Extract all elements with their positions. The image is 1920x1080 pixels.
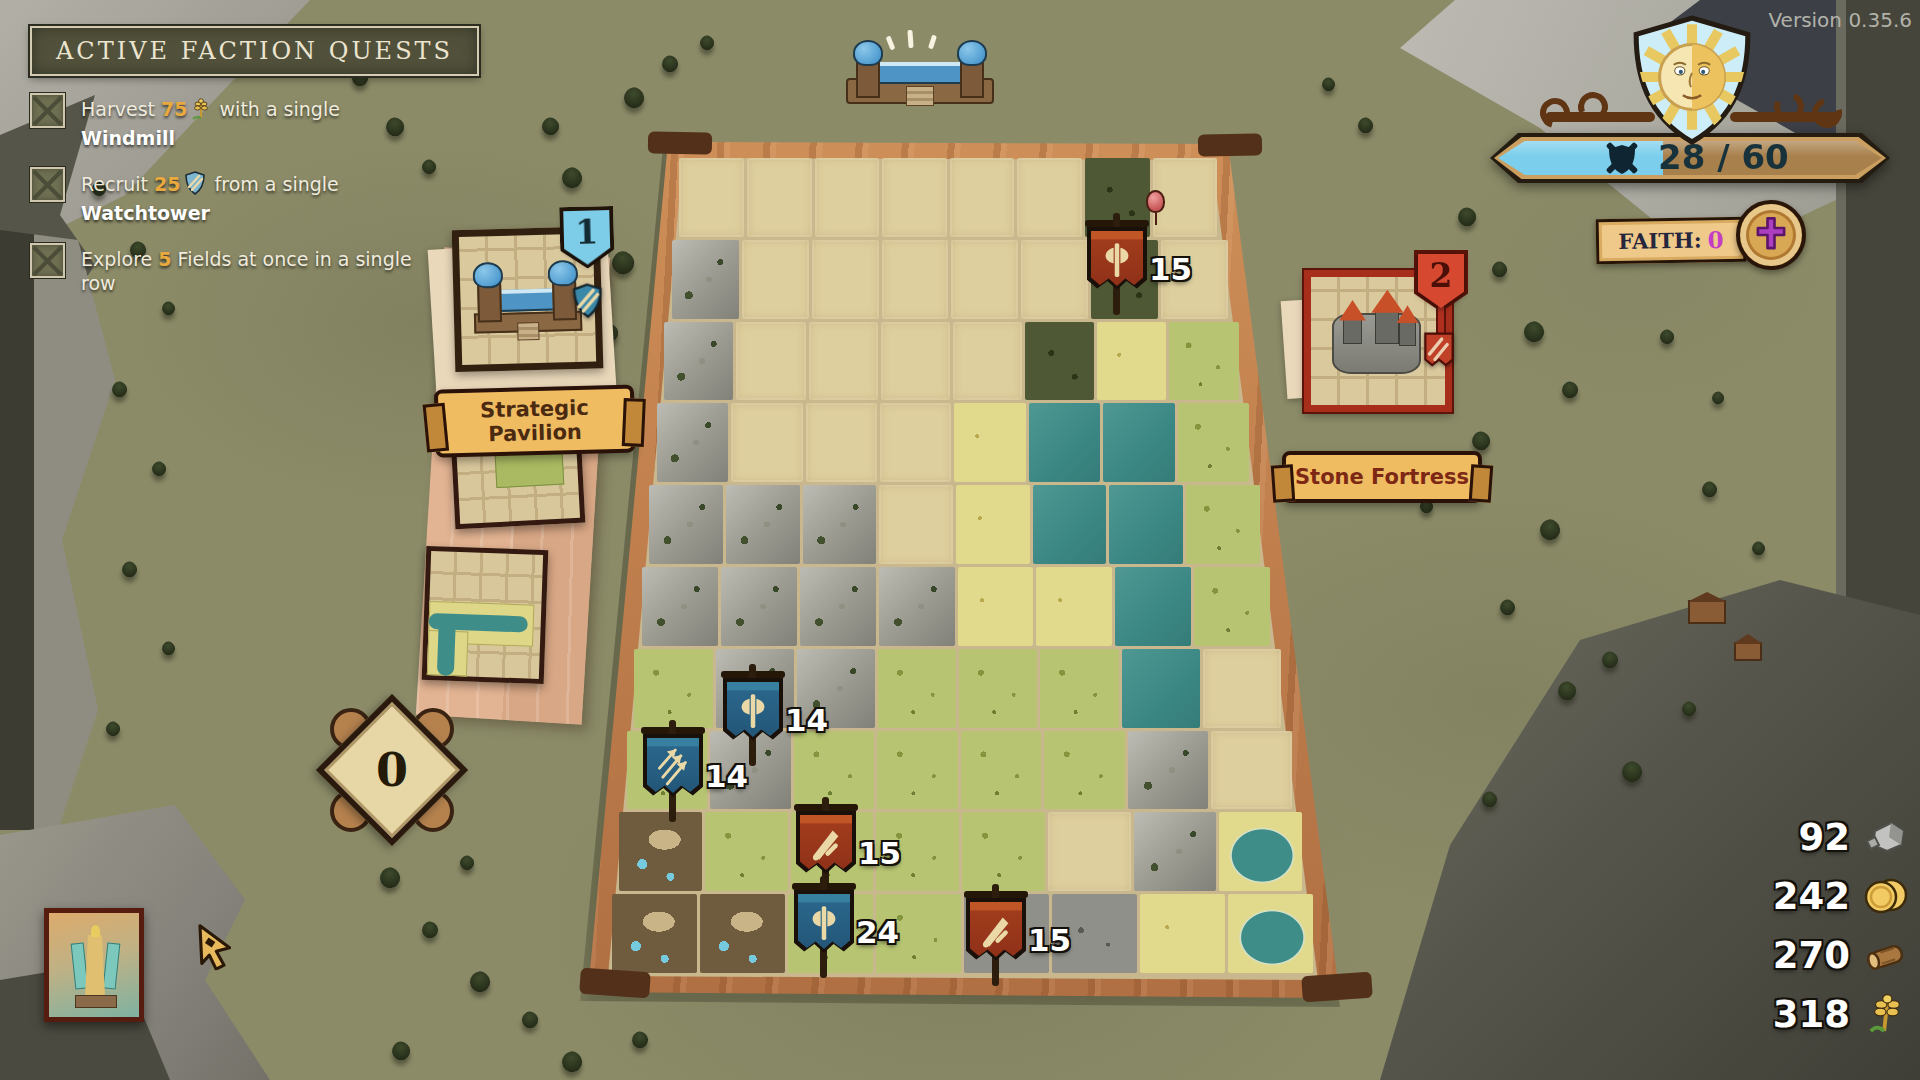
arrows-emblem-icon bbox=[647, 738, 699, 796]
board-corner-ornament bbox=[1198, 133, 1262, 156]
flag-banner bbox=[794, 890, 854, 956]
mouse-cursor bbox=[193, 920, 240, 976]
board-tile[interactable] bbox=[800, 567, 876, 646]
board-tile[interactable] bbox=[1103, 403, 1174, 482]
board-tile[interactable] bbox=[879, 485, 953, 564]
faith-plaque: FAITH: 0 bbox=[1596, 217, 1747, 265]
board-tile[interactable] bbox=[1040, 649, 1118, 728]
monument-art bbox=[85, 935, 105, 997]
quest-checkbox[interactable] bbox=[30, 243, 65, 278]
wheat-icon bbox=[191, 98, 211, 126]
board-tile[interactable] bbox=[1122, 649, 1200, 728]
board-tile[interactable] bbox=[1178, 403, 1249, 482]
monument-card[interactable] bbox=[44, 908, 144, 1022]
board-tile[interactable] bbox=[1203, 649, 1281, 728]
unit-strength-value: 15 bbox=[1149, 251, 1192, 287]
red-arrows-banner-icon bbox=[1424, 332, 1454, 372]
pavilion-count-badge: 1 bbox=[563, 210, 610, 265]
fortress-art bbox=[1399, 321, 1415, 347]
board-tile[interactable] bbox=[958, 567, 1034, 646]
faith-cross-icon bbox=[1736, 200, 1806, 270]
unit-strength-value: 24 bbox=[856, 914, 899, 950]
board-tile[interactable] bbox=[1128, 731, 1208, 810]
quest-text: Harvest 75 with a single Windmill bbox=[81, 93, 426, 150]
board-tile[interactable] bbox=[1228, 894, 1313, 973]
board-tile[interactable] bbox=[815, 158, 880, 237]
board-tile[interactable] bbox=[1194, 567, 1270, 646]
quest-text: Recruit 25 from a single Watchtower bbox=[81, 167, 426, 225]
board-tile[interactable] bbox=[736, 322, 805, 401]
board-tile[interactable] bbox=[1169, 322, 1238, 401]
board-tile[interactable] bbox=[657, 403, 728, 482]
unit-strength-value: 15 bbox=[858, 835, 901, 871]
fortress-art bbox=[1339, 300, 1366, 320]
board-corner-ornament bbox=[648, 131, 712, 154]
board-tile[interactable] bbox=[1048, 812, 1131, 891]
board-tile[interactable] bbox=[664, 322, 733, 401]
army-flag-axe[interactable]: 15 bbox=[1085, 213, 1200, 328]
wood-count: 270 bbox=[1773, 934, 1850, 977]
tile-preview-card[interactable] bbox=[422, 546, 549, 684]
placed-pavilion-building bbox=[838, 28, 1003, 118]
pavilion-dome bbox=[853, 40, 883, 66]
board-tile[interactable] bbox=[1186, 485, 1260, 564]
sparkle-icon bbox=[907, 30, 913, 48]
resource-row: 242 bbox=[1690, 871, 1910, 921]
fortress-art bbox=[1375, 308, 1399, 344]
pavilion-wall bbox=[872, 62, 968, 84]
board-tile[interactable] bbox=[634, 649, 712, 728]
monument-art bbox=[75, 995, 117, 1008]
card-title: Stone Fortress bbox=[1295, 465, 1469, 489]
board-tile[interactable] bbox=[809, 322, 878, 401]
resource-row: 318 bbox=[1690, 989, 1910, 1039]
pavilion-art bbox=[517, 322, 539, 340]
board-tile[interactable] bbox=[679, 158, 744, 237]
board-tile[interactable] bbox=[721, 567, 797, 646]
axe-emblem-icon bbox=[798, 894, 850, 952]
pavilion-steps bbox=[906, 86, 934, 106]
board-tile[interactable] bbox=[1109, 485, 1183, 564]
army-flag-sword[interactable]: 15 bbox=[964, 884, 1079, 999]
card-title: Strategic Pavilion bbox=[474, 395, 595, 446]
board-tile[interactable] bbox=[1115, 567, 1191, 646]
flag-banner bbox=[1087, 227, 1147, 293]
board-tile[interactable] bbox=[1029, 403, 1100, 482]
board-tile[interactable] bbox=[700, 894, 785, 973]
board-tile[interactable] bbox=[803, 485, 877, 564]
sparkle-icon bbox=[886, 36, 896, 51]
board-tile[interactable] bbox=[882, 158, 947, 237]
house-decoration bbox=[1688, 600, 1726, 624]
sword-emblem-icon bbox=[970, 902, 1022, 960]
stone-fortress-card[interactable]: 2 Stone Fortress bbox=[1288, 262, 1483, 457]
axe-emblem-icon bbox=[1091, 231, 1143, 289]
board-tile[interactable] bbox=[954, 403, 1025, 482]
monument-art bbox=[103, 942, 121, 989]
board-tile[interactable] bbox=[950, 158, 1015, 237]
sword-emblem-icon bbox=[800, 815, 852, 873]
board-tile[interactable] bbox=[1036, 567, 1112, 646]
quest-panel-title: ACTIVE FACTION QUESTS bbox=[30, 26, 479, 76]
board-tile[interactable] bbox=[878, 649, 956, 728]
board-tile[interactable] bbox=[1017, 158, 1082, 237]
board-tile[interactable] bbox=[642, 567, 718, 646]
board-tile[interactable] bbox=[742, 240, 809, 319]
board-tile[interactable] bbox=[649, 485, 723, 564]
card-title-scroll: Strategic Pavilion bbox=[434, 384, 636, 457]
board-tile[interactable] bbox=[731, 403, 802, 482]
board-tile[interactable] bbox=[959, 649, 1037, 728]
board-tile[interactable] bbox=[1219, 812, 1302, 891]
deck-counter: 0 bbox=[322, 700, 462, 840]
coins-icon bbox=[1862, 874, 1910, 918]
quest-item: Recruit 25 from a single Watchtower bbox=[30, 167, 490, 225]
card-title-scroll: Stone Fortress bbox=[1282, 451, 1482, 503]
board-corner-ornament bbox=[579, 968, 651, 999]
board-tile[interactable] bbox=[806, 403, 877, 482]
resource-panel: 92 242 270 318 bbox=[1690, 812, 1910, 1048]
unit-strength-value: 14 bbox=[705, 758, 748, 794]
quest-text: Explore 5 Fields at once in a single row bbox=[81, 243, 426, 296]
resource-row: 270 bbox=[1690, 930, 1910, 980]
recruit-shield-icon bbox=[184, 171, 206, 201]
army-flag-arrows[interactable]: 14 bbox=[641, 720, 756, 835]
monument-art bbox=[91, 925, 100, 937]
board-tile[interactable] bbox=[1033, 485, 1107, 564]
wheat-count: 318 bbox=[1773, 993, 1850, 1036]
faith-widget: FAITH: 0 bbox=[1588, 198, 1818, 278]
sparkle-icon bbox=[928, 35, 937, 50]
army-flag-axe[interactable]: 24 bbox=[792, 876, 907, 991]
stone-count: 92 bbox=[1799, 816, 1851, 859]
quest-checkbox[interactable] bbox=[30, 167, 65, 202]
board-tile[interactable] bbox=[880, 403, 951, 482]
camp-balloon-decoration bbox=[1146, 190, 1165, 213]
fortress-count-badge: 2 bbox=[1418, 254, 1464, 308]
board-tile[interactable] bbox=[951, 240, 1018, 319]
board-tile[interactable] bbox=[1211, 731, 1291, 810]
board-tile[interactable] bbox=[812, 240, 879, 319]
unit-strength-value: 15 bbox=[1028, 922, 1071, 958]
flag-banner bbox=[966, 898, 1026, 964]
faith-value: 0 bbox=[1707, 226, 1723, 253]
gold-count: 242 bbox=[1773, 875, 1850, 918]
pavilion-dome bbox=[957, 40, 987, 66]
board-tile[interactable] bbox=[1097, 322, 1166, 401]
board-tile[interactable] bbox=[961, 731, 1041, 810]
pavilion-art bbox=[495, 288, 560, 311]
board-tile[interactable] bbox=[962, 812, 1045, 891]
board-tile[interactable] bbox=[882, 240, 949, 319]
board-tile[interactable] bbox=[1021, 240, 1088, 319]
board-tile[interactable] bbox=[726, 485, 800, 564]
resource-row: 92 bbox=[1690, 812, 1910, 862]
river-preview bbox=[437, 616, 456, 676]
board-corner-ornament bbox=[1301, 972, 1373, 1003]
board-tile[interactable] bbox=[953, 322, 1022, 401]
stone-icon bbox=[1862, 815, 1910, 859]
board-tile[interactable] bbox=[612, 894, 697, 973]
version-label: Version 0.35.6 bbox=[1738, 8, 1912, 32]
flag-banner bbox=[796, 811, 856, 877]
board-tile[interactable] bbox=[1140, 894, 1225, 973]
wood-icon bbox=[1862, 933, 1910, 977]
board-tile[interactable] bbox=[747, 158, 812, 237]
unit-strength-value: 14 bbox=[785, 702, 828, 738]
fortress-art bbox=[1371, 290, 1403, 313]
wheat-icon bbox=[1862, 992, 1910, 1036]
board-tile[interactable] bbox=[956, 485, 1030, 564]
board-tile[interactable] bbox=[1044, 731, 1124, 810]
board-tile[interactable] bbox=[881, 322, 950, 401]
quest-panel: ACTIVE FACTION QUESTS Harvest 75 with a … bbox=[30, 26, 490, 296]
quest-item: Harvest 75 with a single Windmill bbox=[30, 93, 490, 150]
board-tile[interactable] bbox=[672, 240, 739, 319]
board-tile[interactable] bbox=[879, 567, 955, 646]
faith-label: FAITH: bbox=[1618, 227, 1701, 253]
sun-shield-icon bbox=[1622, 14, 1762, 146]
quest-item: Explore 5 Fields at once in a single row bbox=[30, 243, 490, 296]
quest-checkbox[interactable] bbox=[30, 93, 65, 128]
flag-banner bbox=[643, 734, 703, 800]
board-tile[interactable] bbox=[1025, 322, 1094, 401]
board-tile[interactable] bbox=[1134, 812, 1217, 891]
blue-arrows-shield-icon bbox=[571, 282, 604, 323]
house-decoration bbox=[1734, 642, 1762, 661]
